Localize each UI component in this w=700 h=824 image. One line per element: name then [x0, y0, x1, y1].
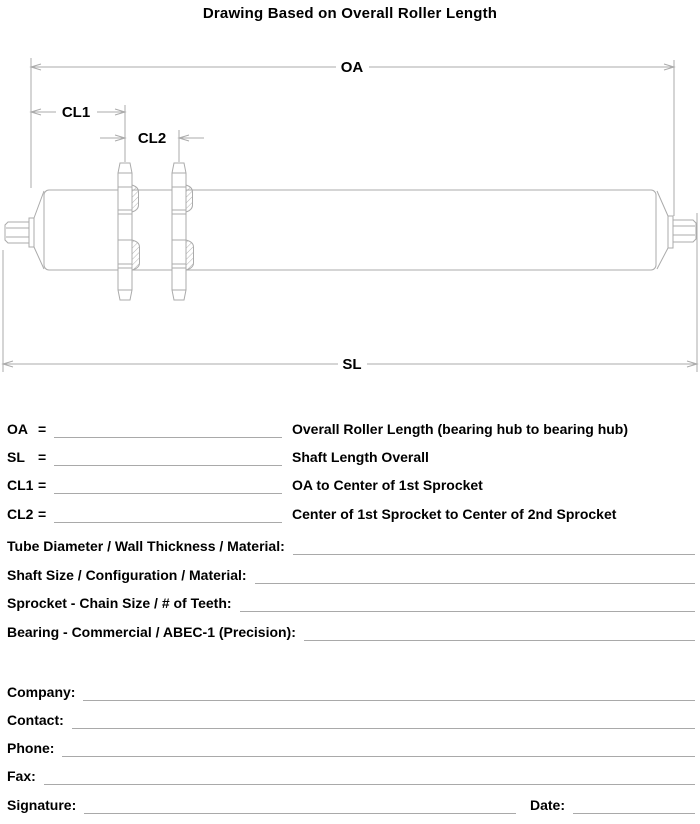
- contact-field[interactable]: [72, 712, 695, 729]
- page-title: Drawing Based on Overall Roller Length: [0, 5, 700, 22]
- roller-drawing: OA CL1 CL2 SL: [0, 40, 700, 390]
- fax-label: Fax:: [7, 767, 36, 785]
- cl2-row-equals: =: [38, 505, 54, 523]
- cl1-row-description: OA to Center of 1st Sprocket: [292, 476, 695, 494]
- shaft-spec-label: Shaft Size / Configuration / Material:: [7, 566, 247, 584]
- date-field[interactable]: [573, 797, 695, 814]
- fax-field[interactable]: [44, 768, 695, 785]
- tube-spec-row: Tube Diameter / Wall Thickness / Materia…: [7, 537, 695, 555]
- shaft-spec-row: Shaft Size / Configuration / Material:: [7, 566, 695, 584]
- cl2-dimension-label: CL2: [138, 130, 166, 147]
- sl-row-equals: =: [38, 448, 54, 466]
- roller-order-form: Drawing Based on Overall Roller Length: [0, 0, 700, 824]
- sl-dimension: [3, 213, 697, 372]
- company-field[interactable]: [83, 684, 695, 701]
- sprocket-spec-label: Sprocket - Chain Size / # of Teeth:: [7, 594, 232, 612]
- cl1-row-equals: =: [38, 476, 54, 494]
- signature-date-row: Signature: Date:: [7, 796, 695, 814]
- sl-dimension-label: SL: [342, 356, 361, 373]
- oa-row-description: Overall Roller Length (bearing hub to be…: [292, 420, 695, 438]
- tube-spec-label: Tube Diameter / Wall Thickness / Materia…: [7, 537, 285, 555]
- tube-spec-field[interactable]: [293, 538, 695, 555]
- oa-row: OA = Overall Roller Length (bearing hub …: [7, 420, 695, 438]
- signature-label: Signature:: [7, 796, 76, 814]
- company-label: Company:: [7, 683, 75, 701]
- cl1-row-label: CL1: [7, 476, 38, 494]
- cl1-dimension-label: CL1: [62, 104, 90, 121]
- right-shaft: [657, 191, 696, 269]
- bearing-spec-row: Bearing - Commercial / ABEC-1 (Precision…: [7, 623, 695, 641]
- cl1-value-field[interactable]: [54, 477, 282, 494]
- cl2-value-field[interactable]: [54, 506, 282, 523]
- sprocket-1: [118, 163, 140, 300]
- sprocket-spec-row: Sprocket - Chain Size / # of Teeth:: [7, 594, 695, 612]
- cl2-row-description: Center of 1st Sprocket to Center of 2nd …: [292, 505, 695, 523]
- bearing-spec-label: Bearing - Commercial / ABEC-1 (Precision…: [7, 623, 296, 641]
- contact-row: Contact:: [7, 711, 695, 729]
- shaft-spec-field[interactable]: [255, 567, 695, 584]
- oa-value-field[interactable]: [54, 421, 282, 438]
- left-shaft: [5, 191, 44, 269]
- cl2-row-label: CL2: [7, 505, 38, 523]
- cl1-row: CL1 = OA to Center of 1st Sprocket: [7, 476, 695, 494]
- contact-label: Contact:: [7, 711, 64, 729]
- oa-row-label: OA: [7, 420, 38, 438]
- oa-dimension-label: OA: [341, 59, 364, 76]
- sprocket-2: [172, 163, 194, 300]
- phone-row: Phone:: [7, 739, 695, 757]
- sl-row: SL = Shaft Length Overall: [7, 448, 695, 466]
- oa-row-equals: =: [38, 420, 54, 438]
- sl-row-description: Shaft Length Overall: [292, 448, 695, 466]
- sprocket-spec-field[interactable]: [240, 595, 695, 612]
- sl-row-label: SL: [7, 448, 38, 466]
- sl-value-field[interactable]: [54, 449, 282, 466]
- bearing-spec-field[interactable]: [304, 624, 695, 641]
- date-label: Date:: [530, 796, 565, 814]
- company-row: Company:: [7, 683, 695, 701]
- phone-label: Phone:: [7, 739, 54, 757]
- signature-field[interactable]: [84, 797, 516, 814]
- fax-row: Fax:: [7, 767, 695, 785]
- cl2-row: CL2 = Center of 1st Sprocket to Center o…: [7, 505, 695, 523]
- phone-field[interactable]: [62, 740, 695, 757]
